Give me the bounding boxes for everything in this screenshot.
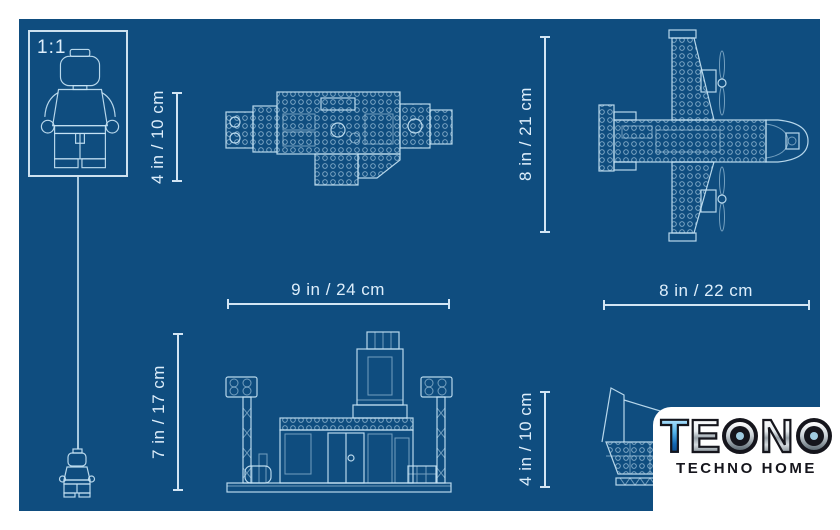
dimension-label-base-top-height: 4 in / 10 cm	[148, 67, 168, 207]
logo-o-dot	[810, 432, 818, 440]
brand-wordmark: T E N	[653, 414, 840, 458]
dimension-line-base-width	[227, 303, 450, 305]
blueprint-page: 1:1	[0, 0, 840, 530]
plane-top-view-drawing	[598, 28, 810, 243]
logo-letter-o	[722, 418, 758, 454]
dimension-line-base-top-height	[176, 92, 178, 182]
minifigure-icon	[38, 48, 122, 174]
scale-hang-line	[77, 177, 79, 449]
dimension-label-base-width: 9 in / 24 cm	[258, 280, 418, 300]
dimension-line-plane-width	[603, 304, 810, 306]
dimension-line-base-front-height	[177, 333, 179, 491]
logo-letter-e: E	[690, 416, 721, 456]
logo-letter-o	[796, 418, 832, 454]
base-front-view-drawing	[225, 328, 453, 494]
dimension-line-plane-side-height	[544, 391, 546, 488]
dimension-label-plane-width: 8 in / 22 cm	[626, 281, 786, 301]
dimension-label-plane-top-height: 8 in / 21 cm	[516, 64, 536, 204]
logo-letter-t: T	[660, 416, 688, 456]
dimension-label-plane-side-height: 4 in / 10 cm	[516, 369, 536, 509]
base-top-view-drawing	[225, 90, 453, 186]
logo-o-dot	[736, 432, 744, 440]
brand-subtitle: TECHNO HOME	[653, 460, 840, 477]
small-minifigure-icon	[58, 448, 96, 498]
scale-reference-box: 1:1	[28, 30, 128, 177]
dimension-label-base-front-height: 7 in / 17 cm	[149, 342, 169, 482]
brand-watermark: T E N TECHNO HOME	[653, 407, 840, 519]
logo-letter-n: N	[760, 416, 793, 456]
dimension-line-plane-top-height	[544, 36, 546, 233]
